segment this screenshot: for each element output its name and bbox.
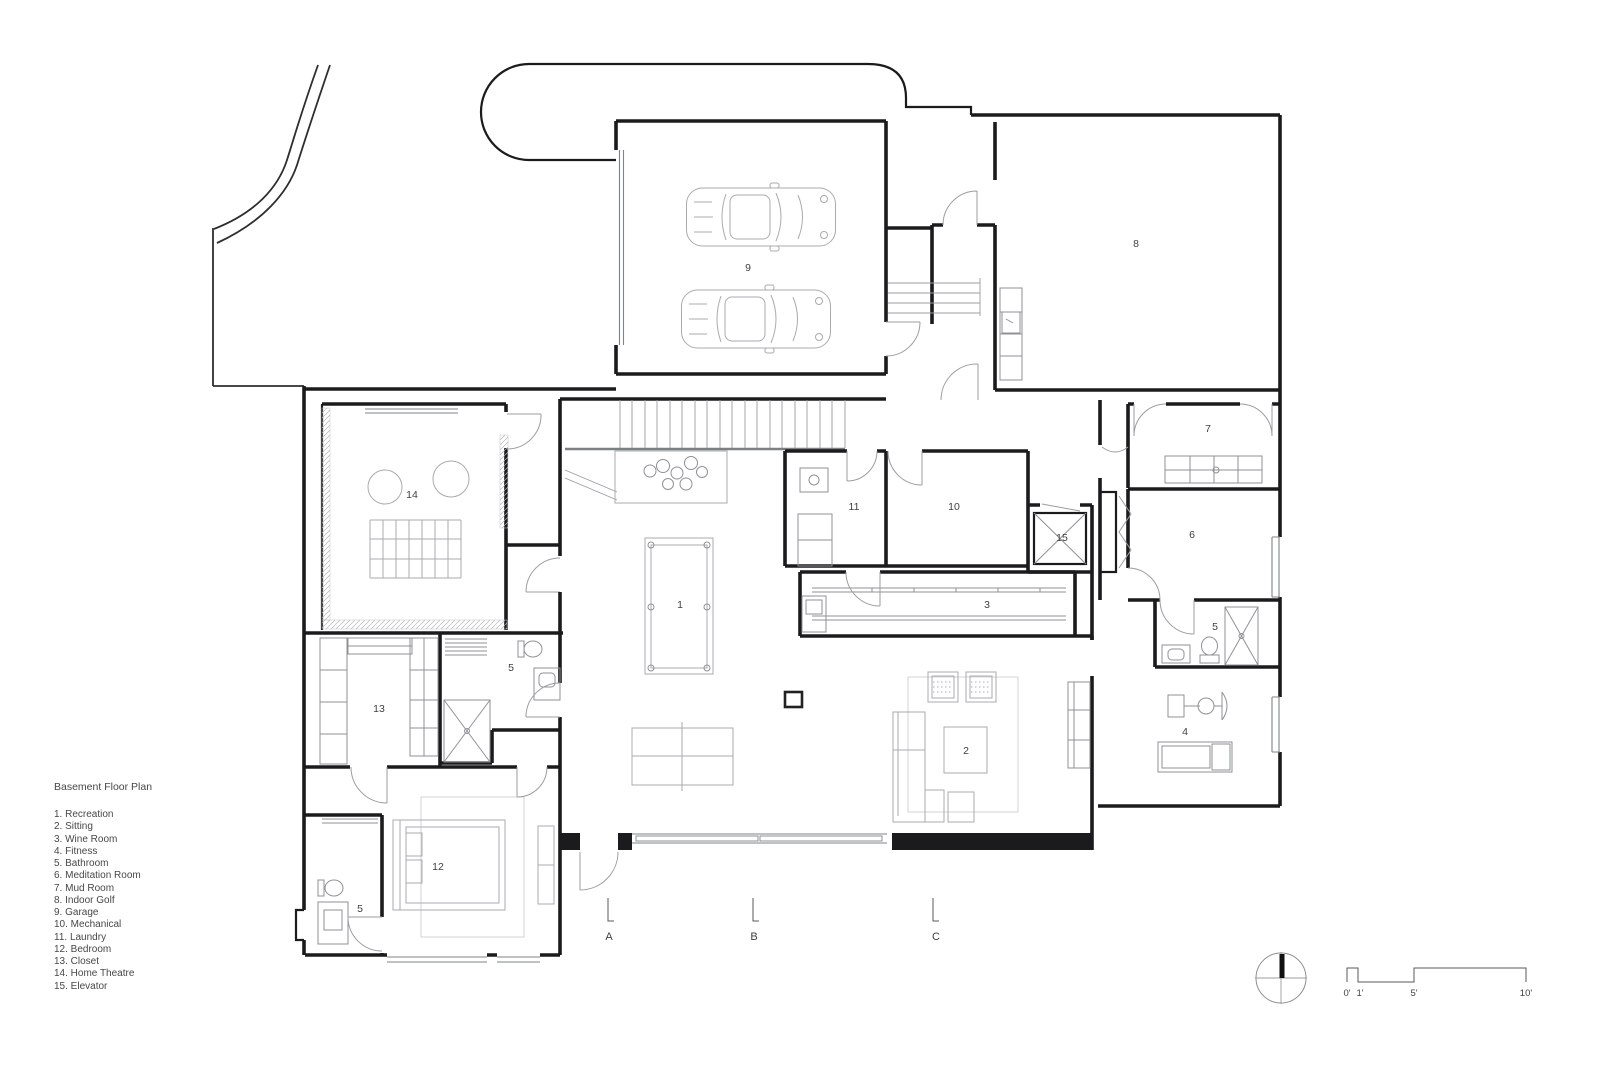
bed [393,820,505,910]
home-theatre [305,399,560,633]
room-number-recreation: 1 [677,599,683,611]
toilet [1202,637,1218,655]
room-number-bathroom-east: 5 [1212,621,1218,633]
driveway-curb [213,65,330,386]
round-chair [433,461,469,497]
scale-mark-1: 1' [1356,988,1363,999]
grid-label-c: C [932,931,940,943]
exterior-door-swing [580,852,618,890]
sink-faucet-icon [1006,319,1013,323]
grid-label-a: A [605,931,613,943]
garage-cars [682,183,836,353]
bathroom-door-swing [1160,600,1194,634]
legend-item-fitness: 4. Fitness [54,846,152,858]
legend-item-bedroom: 12. Bedroom [54,944,152,956]
bedroom-door-swing [517,767,547,797]
toilet [325,880,343,896]
north-arrow-icon [1255,952,1307,1004]
bathroom-ensuite [318,819,382,951]
scale-mark-10: 10' [1520,988,1533,999]
theatre-seating [370,520,461,578]
sliding-door-panel [636,836,758,841]
sofa [893,712,944,822]
legend-item-wine-room: 3. Wine Room [54,834,152,846]
room-number-laundry: 11 [849,501,860,513]
scale-mark-5: 5' [1410,988,1417,999]
legend-title: Basement Floor Plan [54,781,152,793]
south-wall [560,833,1093,890]
legend: Basement Floor Plan 1. Recreation 2. Sit… [54,781,152,993]
sliding-door-panel [760,836,882,841]
media-console [1068,682,1090,768]
entry-vestibule [886,122,995,400]
wine-door-swing [846,572,880,606]
round-chair [368,470,402,504]
legend-item-elevator: 15. Elevator [54,981,152,993]
room-number-fitness: 4 [1182,726,1188,738]
mud-door-swing-left [1134,404,1166,436]
room-number-bathroom-center: 5 [508,662,514,674]
legend-item-laundry: 11. Laundry [54,932,152,944]
entry-canopy [481,64,971,160]
theatre-door-swing [507,414,541,449]
laundry-door-swing [847,451,877,481]
indoor-golf-walls [971,115,1280,806]
golf-door-swing [943,191,977,225]
legend-item-mud-room: 7. Mud Room [54,883,152,895]
mud-door-swing-right [1240,404,1272,436]
sitting-area [893,672,1090,822]
legend-item-closet: 13. Closet [54,956,152,968]
ensuite-door-swing [348,917,382,951]
laundry-mechanical [785,451,1028,572]
projection-screen [365,409,458,413]
washer [798,514,832,540]
grid-markers: A B C [605,898,940,943]
wardrobe [320,638,347,764]
floor-plan-sheet: 9 8 14 7 11 10 15 6 1 3 5 5 13 4 2 12 5 … [0,0,1600,1067]
bathroom-east [1155,600,1280,667]
legend-item-home-theatre: 14. Home Theatre [54,968,152,980]
room-number-bathroom-ensuite: 5 [357,903,363,915]
scale-bar: 0' 1' 5' 10' [1343,968,1532,999]
room-number-meditation: 6 [1189,529,1195,541]
room-number-home-theatre: 14 [406,489,418,501]
garage-walls [616,121,886,374]
stair-planter-stones [644,457,708,491]
hall-door-swing [526,558,560,592]
mechanical-door-swing [888,451,922,485]
vestibule-door-swing [941,364,978,400]
room-number-wine-room: 3 [984,599,990,611]
room-number-closet: 13 [373,703,385,715]
meditation-door-swing [1128,568,1160,600]
meditation-room [1100,489,1280,600]
room-number-mud-room: 7 [1205,423,1211,435]
grid-label-b: B [750,931,757,943]
garage-door-swing [886,322,920,356]
room-number-bedroom: 12 [432,861,444,873]
armchair [966,672,996,702]
room-number-garage: 9 [745,262,751,274]
legend-item-garage: 9. Garage [54,907,152,919]
legend-item-sitting: 2. Sitting [54,821,152,833]
floor-plan-drawing: 9 8 14 7 11 10 15 6 1 3 5 5 13 4 2 12 5 … [0,0,1600,1067]
room-number-sitting: 2 [963,745,969,757]
scale-mark-0: 0' [1343,988,1350,999]
wall-niche [296,910,304,940]
room-number-mechanical: 10 [948,501,960,513]
dryer [798,540,832,566]
vanity [318,902,348,944]
legend-item-recreation: 1. Recreation [54,809,152,821]
armchair [928,672,958,702]
recreation [526,538,802,791]
column [785,692,802,707]
room-number-indoor-golf: 8 [1133,238,1139,250]
exercise-bike [1168,692,1227,720]
closet-door-swing [351,767,387,803]
treadmill [1158,742,1232,772]
legend-item-indoor-golf: 8. Indoor Golf [54,895,152,907]
ottoman [948,792,974,822]
closet-13 [305,548,560,955]
toilet [524,641,542,657]
legend-item-meditation-room: 6. Meditation Room [54,870,152,882]
wine-room [800,572,1092,636]
legend-item-bathroom: 5. Bathroom [54,858,152,870]
room-number-elevator: 15 [1056,532,1068,544]
bathroom-center [440,633,563,763]
legend-item-mechanical: 10. Mechanical [54,919,152,931]
